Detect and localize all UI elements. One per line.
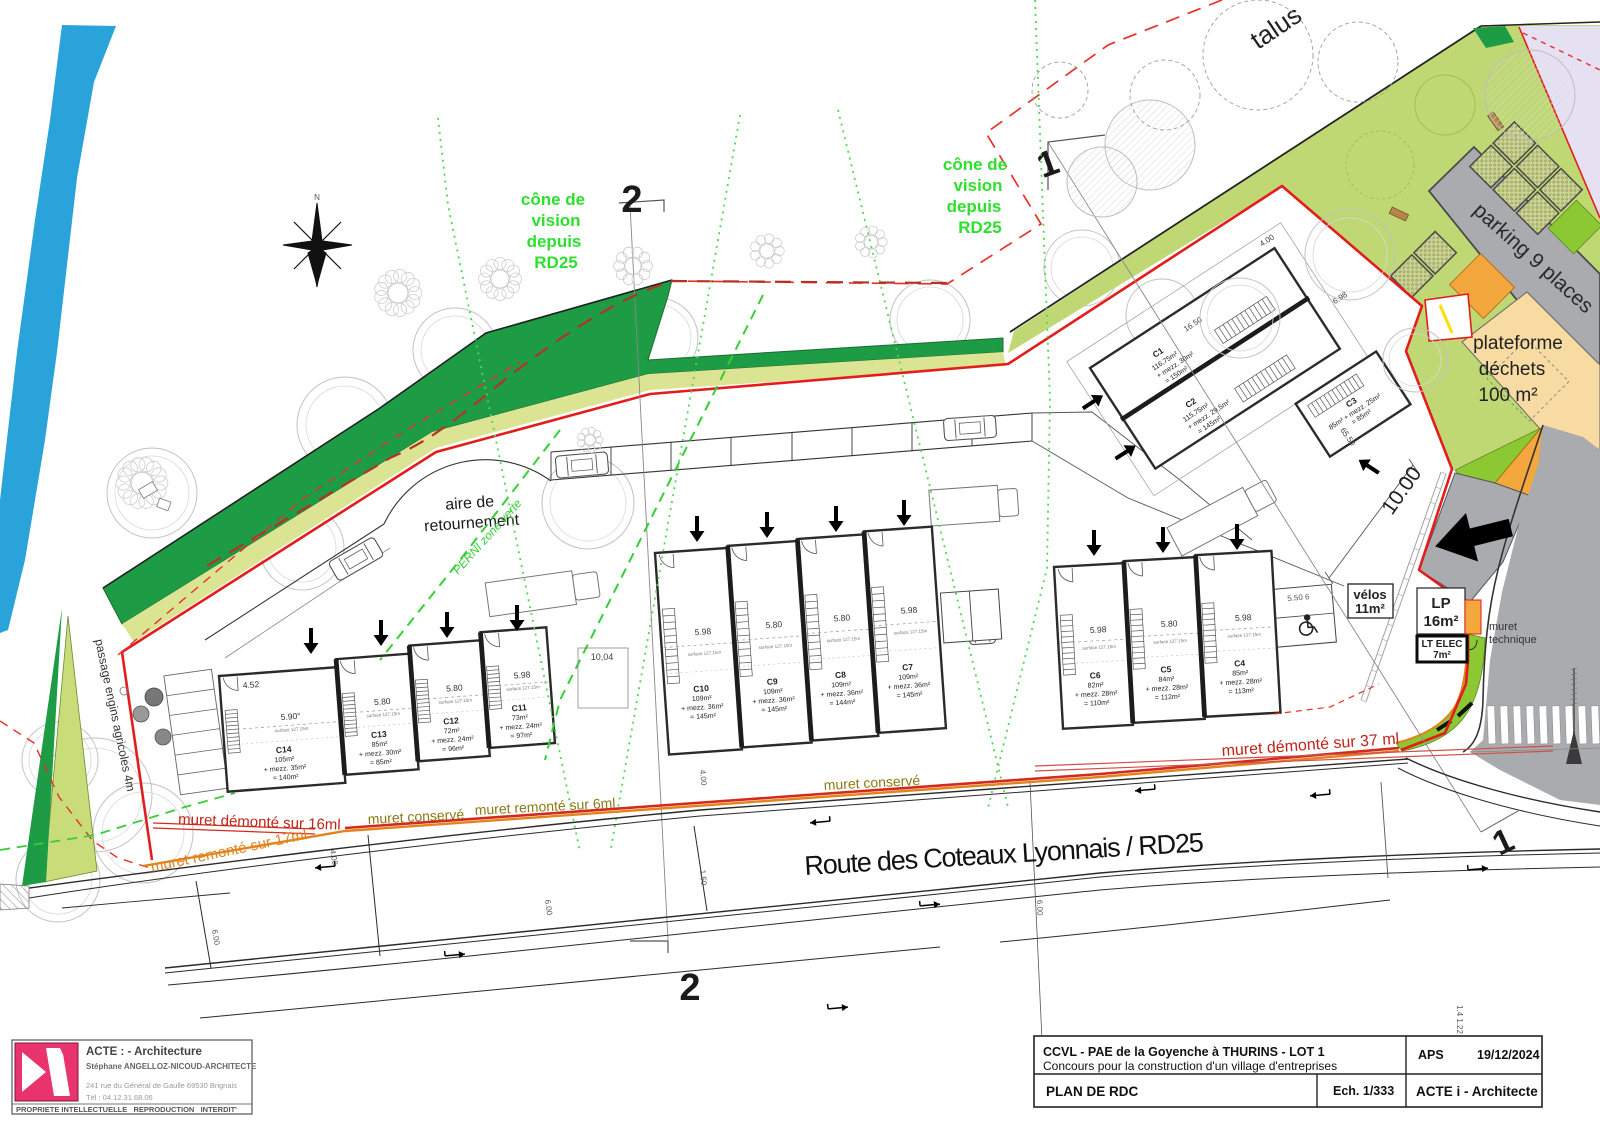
svg-text:vélos: vélos xyxy=(1353,587,1386,602)
svg-text:6.00: 6.00 xyxy=(1035,900,1045,916)
svg-text:= 113m²: = 113m² xyxy=(1228,687,1254,695)
svg-text:84m²: 84m² xyxy=(1158,676,1175,684)
svg-text:85m²: 85m² xyxy=(1232,670,1249,678)
svg-text:C5: C5 xyxy=(1160,664,1172,675)
svg-text:ACTE : - Architecture: ACTE : - Architecture xyxy=(86,1046,202,1058)
svg-text:C8: C8 xyxy=(835,669,847,680)
svg-text:241 rue du Général de Gaulle 6: 241 rue du Général de Gaulle 69530 Brign… xyxy=(86,1081,237,1090)
svg-text:5.80: 5.80 xyxy=(374,696,392,707)
svg-text:5.80: 5.80 xyxy=(833,612,850,623)
svg-text:1.4 1.22: 1.4 1.22 xyxy=(1455,1005,1464,1034)
svg-text:vision: vision xyxy=(953,176,1002,195)
svg-text:technique: technique xyxy=(1489,634,1537,646)
svg-text:CCVL - PAE de la Goyenche à TH: CCVL - PAE de la Goyenche à THURINS - LO… xyxy=(1043,1045,1325,1059)
svg-text:= 112m²: = 112m² xyxy=(1155,694,1181,702)
svg-text:cône de: cône de xyxy=(943,155,1007,174)
svg-text:LP: LP xyxy=(1431,595,1450,612)
svg-text:cône de: cône de xyxy=(521,190,585,209)
svg-text:5.98: 5.98 xyxy=(694,626,711,637)
svg-text:109m²: 109m² xyxy=(898,673,919,681)
svg-text:1.50: 1.50 xyxy=(698,869,708,886)
svg-text:C11: C11 xyxy=(511,702,527,713)
svg-text:10,04: 10,04 xyxy=(591,652,614,662)
svg-text:C10: C10 xyxy=(693,683,710,694)
svg-text:5.98: 5.98 xyxy=(1090,624,1107,635)
svg-text:C13: C13 xyxy=(371,729,388,740)
svg-text:7m²: 7m² xyxy=(1433,650,1451,661)
svg-text:depuis: depuis xyxy=(527,232,582,251)
svg-text:= 110m²: = 110m² xyxy=(1084,699,1110,707)
svg-text:5.80: 5.80 xyxy=(765,619,782,630)
svg-text:73m²: 73m² xyxy=(512,714,529,722)
svg-text:4.52: 4.52 xyxy=(242,679,260,690)
svg-text:vision: vision xyxy=(531,211,580,230)
svg-text:5.80: 5.80 xyxy=(1161,618,1178,629)
svg-text:APS: APS xyxy=(1418,1048,1444,1062)
svg-text:C9: C9 xyxy=(766,676,778,687)
svg-text:aire de: aire de xyxy=(445,493,495,513)
svg-text:2: 2 xyxy=(679,967,700,1009)
svg-text:ACTE i - Architecte: ACTE i - Architecte xyxy=(1416,1084,1538,1099)
svg-text:16m²: 16m² xyxy=(1423,613,1458,630)
svg-text:plateforme: plateforme xyxy=(1473,333,1563,354)
svg-text:depuis: depuis xyxy=(947,197,1002,216)
svg-text:C12: C12 xyxy=(443,715,460,726)
svg-text:5.98: 5.98 xyxy=(900,605,917,616)
svg-text:72m²: 72m² xyxy=(444,727,461,735)
svg-text:C4: C4 xyxy=(1234,658,1246,669)
svg-text:N: N xyxy=(314,193,320,202)
svg-text:déchets: déchets xyxy=(1479,359,1546,380)
svg-text:RD25: RD25 xyxy=(958,218,1001,237)
svg-text:Stéphane ANGELLOZ-NICOUD-ARCHI: Stéphane ANGELLOZ-NICOUD-ARCHITECTE xyxy=(86,1062,257,1071)
svg-text:109m²: 109m² xyxy=(692,695,713,703)
svg-text:C14: C14 xyxy=(276,744,293,755)
svg-text:LT ELEC: LT ELEC xyxy=(1422,639,1463,650)
svg-text:Ech. 1/333: Ech. 1/333 xyxy=(1333,1084,1394,1098)
svg-text:5.98: 5.98 xyxy=(1235,612,1252,623)
svg-text:RD25: RD25 xyxy=(534,253,577,272)
svg-text:Tél : 04.12.31.68.06: Tél : 04.12.31.68.06 xyxy=(86,1093,153,1102)
svg-text:C6: C6 xyxy=(1089,670,1101,681)
svg-text:muret: muret xyxy=(1489,621,1517,633)
svg-text:5.80: 5.80 xyxy=(446,682,464,693)
svg-text:PLAN DE RDC: PLAN DE RDC xyxy=(1046,1084,1139,1099)
svg-text:100 m²: 100 m² xyxy=(1478,385,1537,406)
svg-text:5.98: 5.98 xyxy=(513,669,531,680)
svg-text:Concours pour la construction: Concours pour la construction d'un villa… xyxy=(1043,1059,1337,1073)
svg-text:85m²: 85m² xyxy=(371,741,388,749)
svg-text:PROPRIETE INTELLECTUELLE REP: PROPRIETE INTELLECTUELLE REPRODUCTION IN… xyxy=(16,1105,237,1114)
svg-text:11m²: 11m² xyxy=(1355,601,1385,616)
svg-text:4.00: 4.00 xyxy=(698,769,708,786)
svg-text:82m²: 82m² xyxy=(1088,682,1105,690)
svg-text:C7: C7 xyxy=(902,662,914,673)
svg-text:2: 2 xyxy=(621,179,642,221)
svg-text:5.90°: 5.90° xyxy=(280,711,301,722)
svg-text:109m²: 109m² xyxy=(831,681,852,689)
svg-text:19/12/2024: 19/12/2024 xyxy=(1477,1048,1540,1062)
svg-text:109m²: 109m² xyxy=(763,688,784,696)
